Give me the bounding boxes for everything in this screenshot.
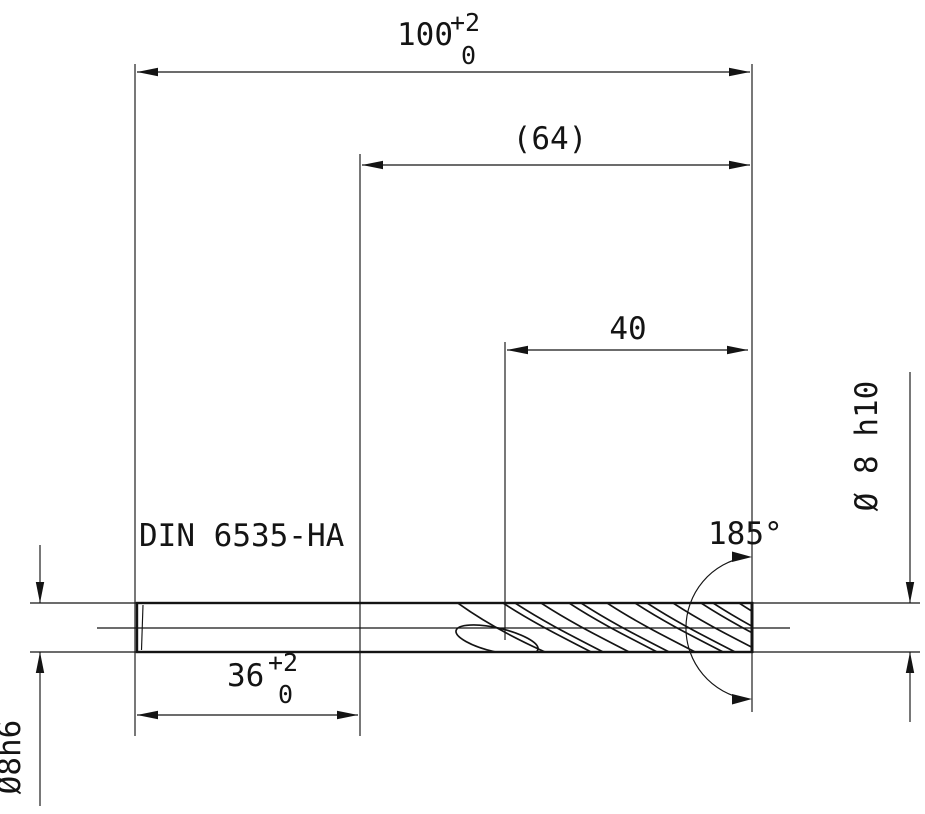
dim-tolerance-upper: +2 — [450, 8, 480, 37]
standard-label: DIN 6535-HA — [139, 518, 345, 554]
dim-tolerance-lower: 0 — [278, 680, 293, 709]
arrowhead-right — [727, 346, 748, 354]
dim-cutting-diameter: Ø 8 h10 — [849, 372, 914, 722]
dim-reference-length: (64) — [362, 121, 750, 169]
arrowhead-left — [362, 161, 383, 169]
arrowhead-down — [36, 582, 44, 603]
arrowhead-left — [137, 711, 158, 719]
arrowhead-right — [729, 161, 750, 169]
dim-tolerance-upper: +2 — [268, 648, 298, 677]
shank-end-chamfer — [142, 605, 144, 650]
tool-body — [137, 601, 831, 661]
dim-value: 40 — [609, 311, 646, 347]
dim-tolerance-lower: 0 — [461, 41, 476, 70]
dim-value: 36 — [227, 658, 264, 694]
flute-line — [455, 601, 545, 652]
arrowhead-right — [729, 68, 750, 76]
arrowhead-up — [36, 652, 44, 673]
dim-value: Ø 8 h10 — [849, 381, 885, 512]
drawing-page: 100 +2 0 (64) 40 36 +2 0 Ø8h6 — [0, 0, 925, 814]
arrowhead-right — [337, 711, 358, 719]
dim-value: 185° — [708, 516, 783, 552]
dim-value: (64) — [513, 121, 588, 157]
dim-value: Ø8h6 — [0, 720, 28, 795]
arrowhead-down — [906, 582, 914, 603]
dim-value: 100 — [397, 17, 453, 53]
flute-runout — [453, 619, 540, 661]
dim-shank-length: 36 +2 0 — [137, 648, 358, 719]
arrowhead-up — [906, 652, 914, 673]
arrowhead-left — [137, 68, 158, 76]
dim-overall-length: 100 +2 0 — [137, 8, 750, 76]
dim-flute-length: 40 — [507, 311, 748, 354]
arrowhead-left — [507, 346, 528, 354]
arrowhead-bottom — [732, 694, 752, 705]
dim-point-angle: 185° — [686, 516, 783, 705]
dim-shank-diameter: Ø8h6 — [0, 545, 44, 806]
arrowhead-top — [732, 552, 752, 563]
technical-drawing-canvas: 100 +2 0 (64) 40 36 +2 0 Ø8h6 — [0, 0, 925, 814]
